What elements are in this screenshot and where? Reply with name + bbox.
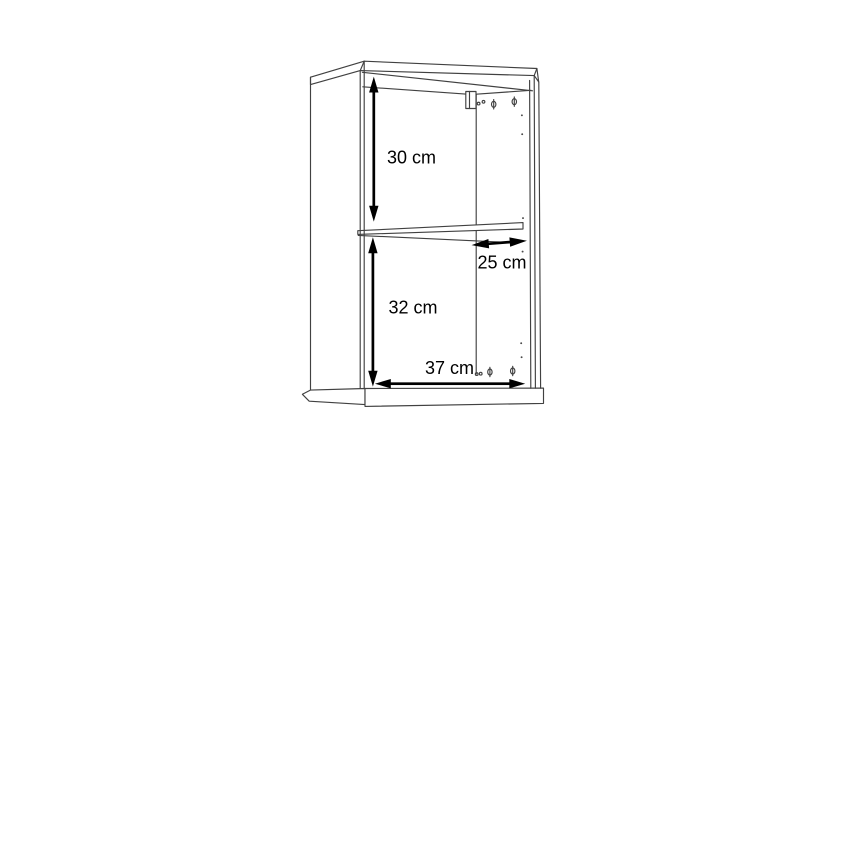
shelf-depth-label: 25 cm xyxy=(478,253,527,273)
cam-hole xyxy=(511,366,515,375)
shelf-pin-holes xyxy=(520,114,524,358)
width-label: 37 cm xyxy=(425,358,474,378)
cam-hole xyxy=(512,97,516,106)
upper-height-arrow xyxy=(369,77,378,222)
right-side-panel xyxy=(530,76,541,389)
shelf-depth-arrow xyxy=(472,237,527,248)
left-side-panel xyxy=(311,61,365,390)
page-canvas: 30 cm 25 cm 32 cm 37 cm xyxy=(0,0,868,868)
lower-height-label: 32 cm xyxy=(389,298,438,318)
lower-height-arrow xyxy=(368,237,377,386)
width-arrow xyxy=(375,379,525,388)
fitting-holes-bottom xyxy=(475,366,515,376)
cam-hole xyxy=(488,367,492,376)
wall-mount-bracket xyxy=(466,92,476,109)
upper-height-label: 30 cm xyxy=(387,148,436,168)
cam-hole xyxy=(492,100,496,109)
cabinet-outline xyxy=(302,61,543,406)
middle-shelf xyxy=(358,223,523,243)
cabinet-dimension-diagram: 30 cm 25 cm 32 cm 37 cm xyxy=(0,0,868,868)
bottom-panel xyxy=(302,388,543,406)
fitting-holes-top xyxy=(477,97,516,109)
top-panel xyxy=(311,61,539,91)
